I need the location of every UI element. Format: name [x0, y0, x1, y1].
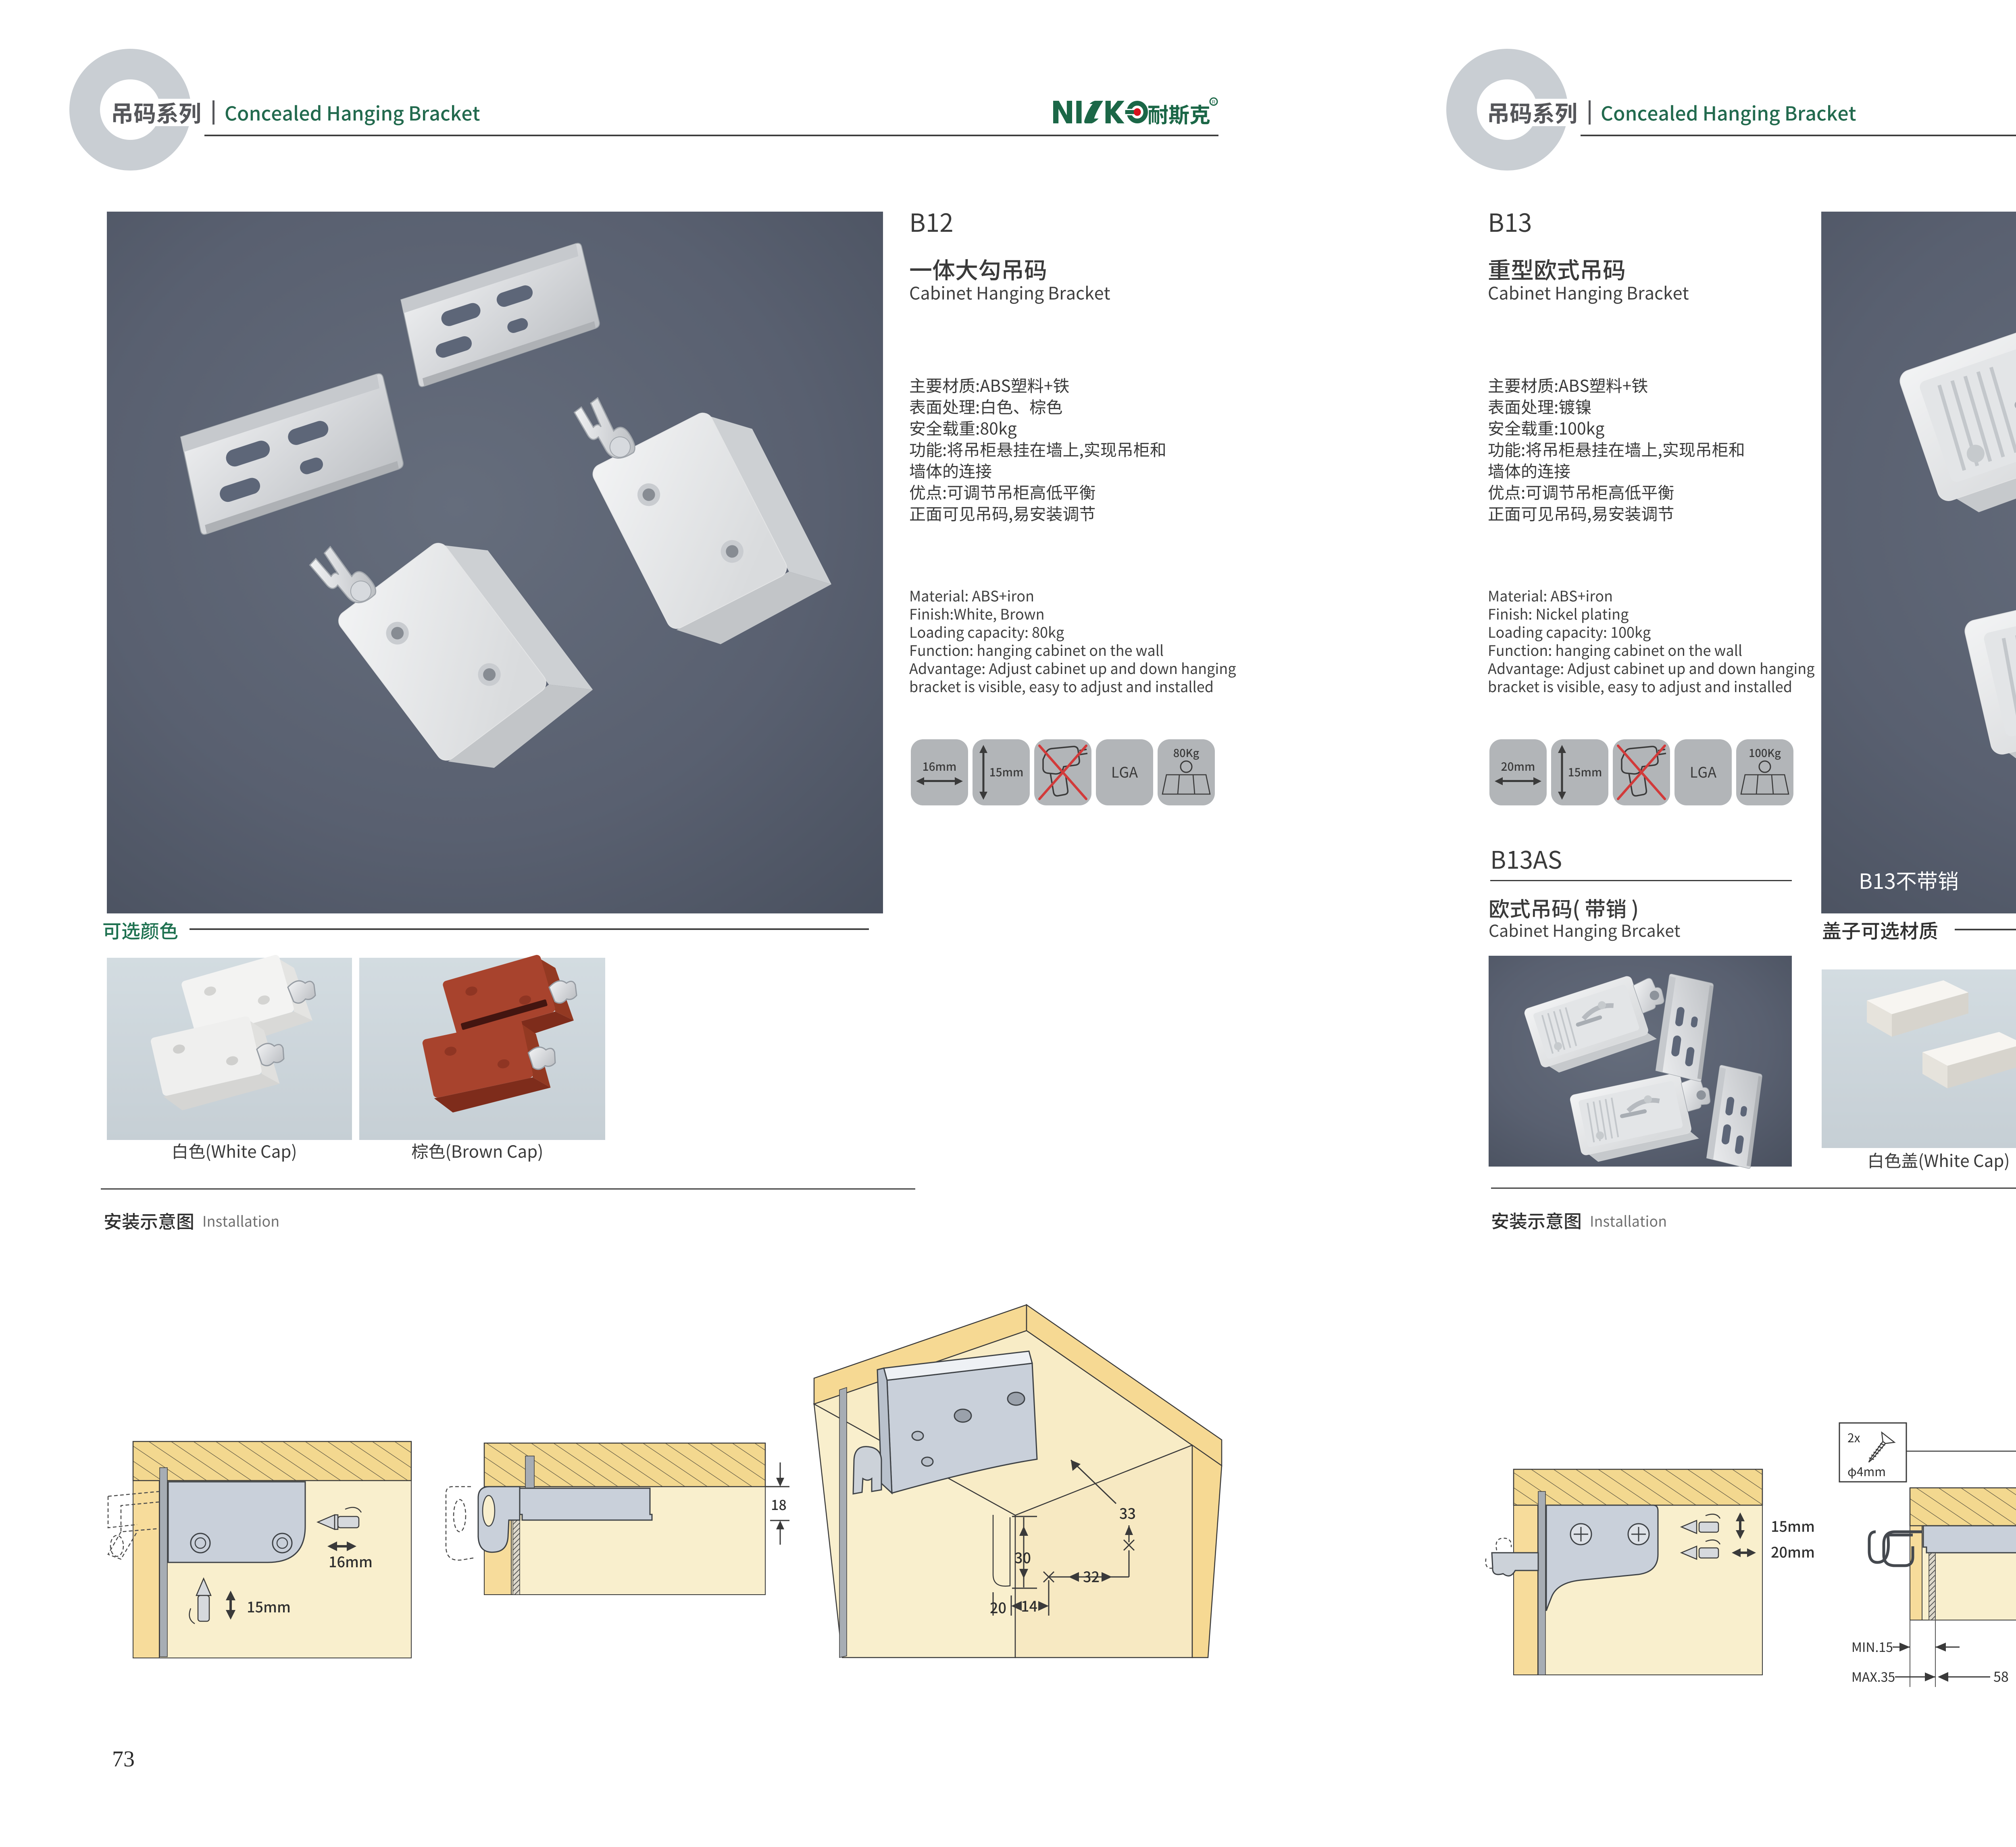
svg-text:R: R — [1212, 99, 1216, 105]
svg-text:73: 73 — [112, 1747, 135, 1772]
